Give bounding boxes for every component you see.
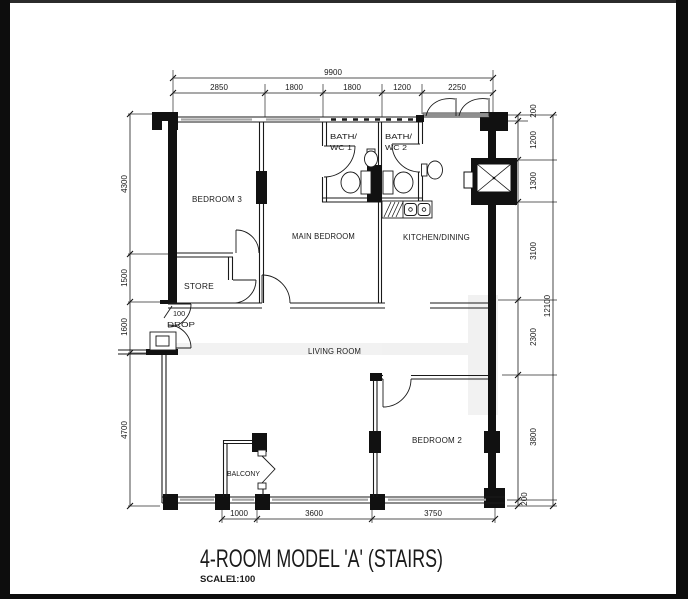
kitchen-basin-icon xyxy=(422,161,443,179)
label-store: STORE xyxy=(184,281,214,291)
corner-column-bottomright xyxy=(484,488,505,508)
toilet-2-icon xyxy=(383,171,413,194)
dim-right-total: 12100 xyxy=(543,294,552,317)
dim-right-seg-2: 1200 xyxy=(529,131,538,149)
dim-right-seg-3: 1300 xyxy=(529,172,538,190)
dim-top-seg-3: 1800 xyxy=(343,83,361,92)
scale-label: SCALE xyxy=(200,574,232,585)
scale-value: 1:100 xyxy=(231,574,255,585)
dim-left-seg-2: 1500 xyxy=(120,269,129,287)
window-living-2 xyxy=(272,499,368,501)
dim-right-seg-1: 200 xyxy=(529,104,538,118)
label-drop-line2: DROP xyxy=(167,320,195,329)
label-bedroom2: BEDROOM 2 xyxy=(412,435,462,445)
plan-title: 4-ROOM MODEL 'A' (STAIRS) xyxy=(200,545,443,573)
label-bath2-line2: WC 2 xyxy=(385,143,407,152)
window-main-bedroom xyxy=(266,118,320,120)
label-drop-line1: 100 xyxy=(173,309,185,318)
right-frame-bar xyxy=(676,0,688,599)
dim-left-seg-1: 4300 xyxy=(120,175,129,193)
label-kitchen-dining: KITCHEN/DINING xyxy=(403,232,470,242)
dim-top-seg-2: 1800 xyxy=(285,83,303,92)
dim-right-seg-5: 2300 xyxy=(529,328,538,346)
window-bedroom2 xyxy=(388,499,486,501)
dim-bottom-seg-3: 3750 xyxy=(424,509,442,518)
label-bath1-line1: BATH/ xyxy=(330,132,358,141)
window-bedroom3 xyxy=(181,118,252,120)
label-main-bedroom: MAIN BEDROOM xyxy=(292,231,355,241)
column-balcony xyxy=(252,433,267,452)
refuse-chute-icon xyxy=(464,158,517,205)
bottom-frame-strip xyxy=(10,594,676,599)
toilet-1-icon xyxy=(341,171,371,194)
window-living-1 xyxy=(180,499,214,501)
column-bedroom2-wall xyxy=(369,431,381,453)
column-right-mid xyxy=(484,431,500,453)
label-balcony: BALCONY xyxy=(227,469,260,478)
screenshot-canvas: 9900 2850 1800 1800 1200 2250 4300 1500 xyxy=(0,0,688,599)
dim-top-seg-4: 1200 xyxy=(393,83,411,92)
column-bottom-2 xyxy=(215,494,230,510)
hose-reel-icon xyxy=(150,332,176,350)
label-bath2-line1: BATH/ xyxy=(385,132,413,141)
top-frame-strip xyxy=(0,0,688,3)
dim-top-total: 9900 xyxy=(324,68,342,77)
dim-bottom-seg-2: 3600 xyxy=(305,509,323,518)
label-living-room: LIVING ROOM xyxy=(308,346,361,356)
floorplan-svg: 9900 2850 1800 1800 1200 2250 4300 1500 xyxy=(0,0,688,599)
column-bottom-1 xyxy=(163,494,178,510)
dim-right-seg-4: 3100 xyxy=(529,242,538,260)
dim-top-seg-1: 2850 xyxy=(210,83,228,92)
label-bath1-line2: WC 1 xyxy=(330,143,352,152)
kitchen-sink-icon xyxy=(382,201,432,218)
dim-left-seg-3: 1600 xyxy=(120,318,129,336)
column-bedroom3-wall xyxy=(256,171,267,204)
dim-bottom-seg-1: 1000 xyxy=(230,509,248,518)
left-frame-bar xyxy=(0,0,10,599)
left-exterior-wall xyxy=(168,120,177,303)
dim-top-seg-5: 2250 xyxy=(448,83,466,92)
dim-left-seg-4: 4700 xyxy=(120,421,129,439)
dim-right-seg-7: 200 xyxy=(520,492,529,506)
dim-right-seg-6: 3800 xyxy=(529,428,538,446)
label-bedroom3: BEDROOM 3 xyxy=(192,194,242,204)
window-balcony-front xyxy=(232,499,254,501)
